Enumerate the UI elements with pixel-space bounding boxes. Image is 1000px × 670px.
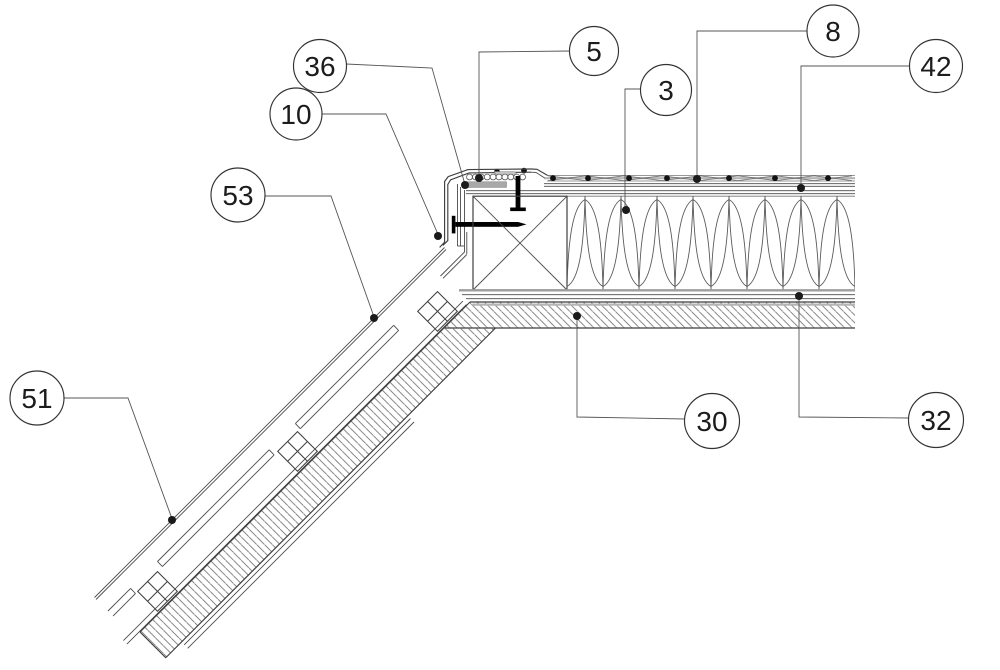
leader-line [801,66,910,188]
horizontal-screw [452,216,527,234]
leader-dot [370,314,378,322]
leader-dot [168,516,176,524]
leader-line [625,89,641,210]
callout-51: 51 [10,371,176,524]
callout-label: 42 [920,51,951,82]
structural-slab [444,302,855,328]
pitched-roof-assembly [95,248,496,659]
callout-3: 3 [622,65,692,215]
leader-dot [573,312,581,320]
leader-line [64,398,172,520]
gasket-strip [467,182,507,188]
callout-label: 51 [21,383,52,414]
leader-line [322,114,438,236]
callout-30: 30 [573,312,740,449]
construction-detail-drawing: 53610535138423032 [0,0,1000,670]
leader-line [577,316,685,419]
callout-label: 3 [658,75,674,106]
leader-dot [475,174,483,182]
callout-label: 30 [696,406,727,437]
callout-label: 36 [304,51,335,82]
leader-dot [797,184,805,192]
leader-dot [693,175,701,183]
callout-label: 8 [825,16,841,47]
leader-line [346,64,465,185]
callout-label: 5 [586,36,602,67]
leader-dot [434,232,442,240]
callout-53: 53 [211,168,378,322]
callout-8: 8 [693,5,859,183]
leader-line [265,196,374,318]
leader-dot [795,292,803,300]
batten-boards [108,325,399,616]
flat-roof-assembly [440,168,855,328]
counter-batten-blocks [138,292,458,612]
leader-line [697,31,807,179]
sarking-membrane [123,301,466,644]
edge-flashing-profile [440,169,548,247]
insulation-batt [567,196,855,290]
callout-5: 5 [475,27,619,183]
callout-label: 10 [280,99,311,130]
leader-line [479,51,570,178]
callout-label: 53 [222,180,253,211]
detail-drawing-canvas: 53610535138423032 [0,0,1000,670]
leader-dot [622,206,630,214]
callout-10: 10 [270,88,442,240]
leader-dot [461,181,469,189]
callout-label: 32 [920,405,951,436]
callout-42: 42 [797,40,963,193]
